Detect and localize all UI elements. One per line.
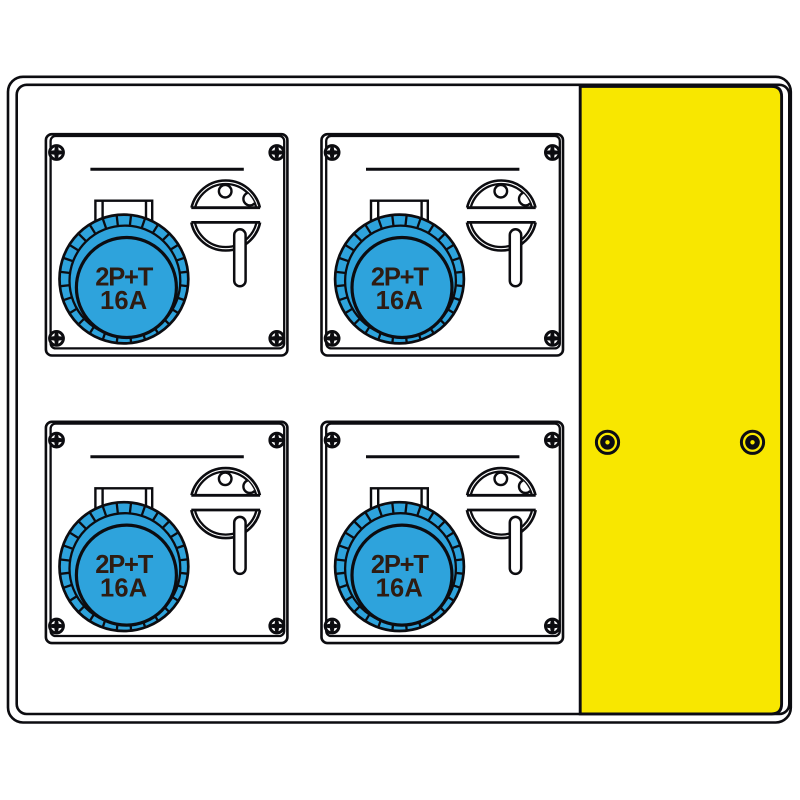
svg-text:16A: 16A	[376, 287, 423, 315]
svg-text:16A: 16A	[100, 575, 147, 603]
svg-text:16A: 16A	[100, 287, 147, 315]
svg-text:16A: 16A	[376, 575, 423, 603]
